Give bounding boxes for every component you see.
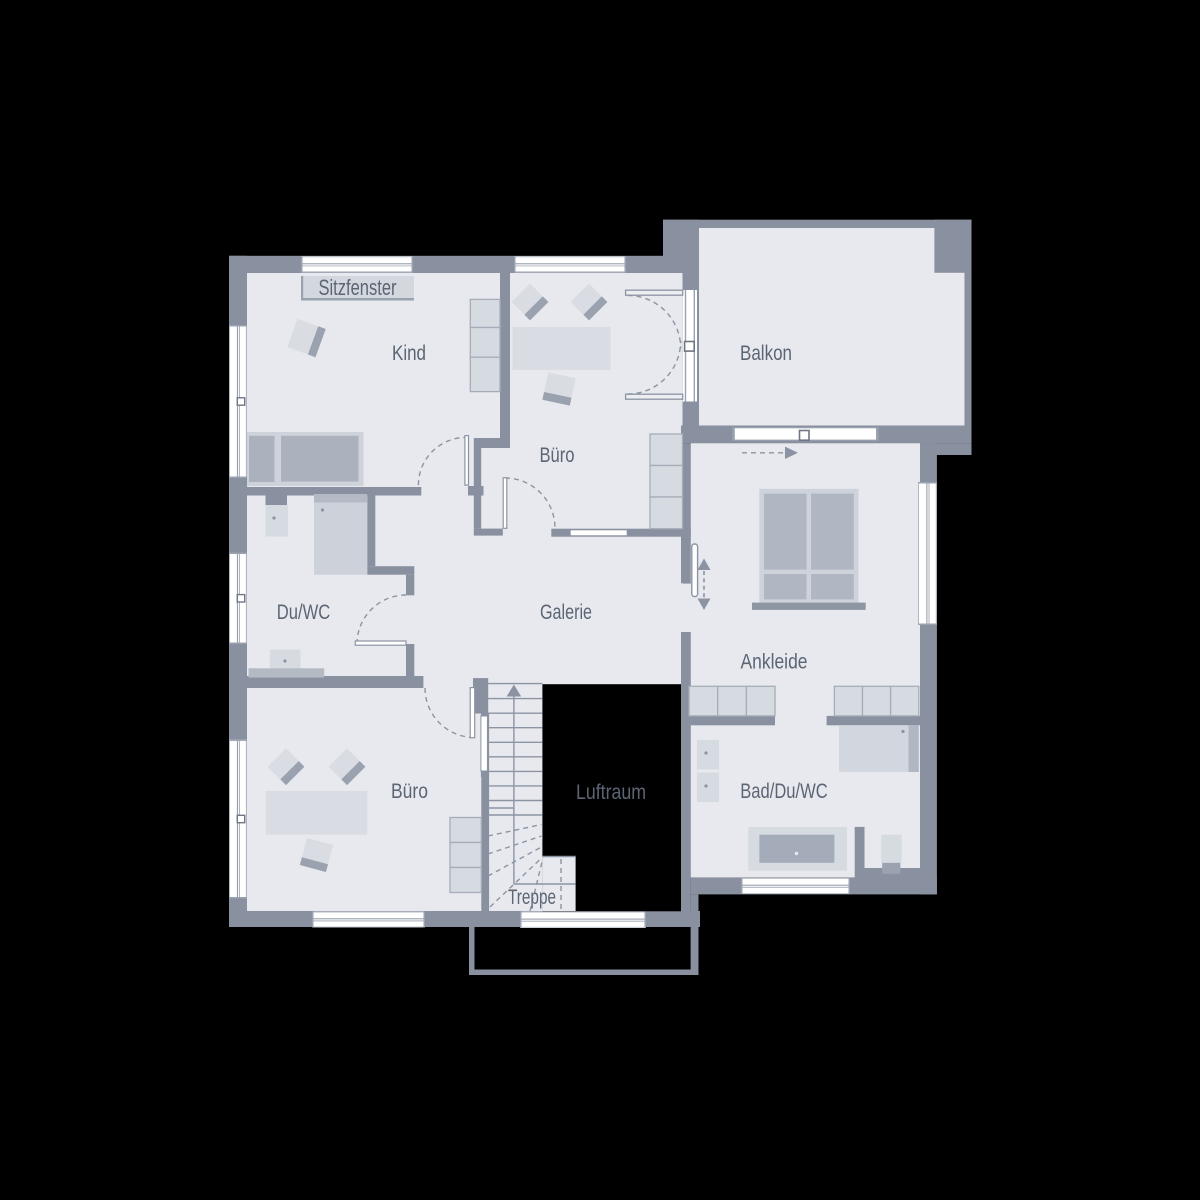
svg-text:Galerie: Galerie <box>540 601 592 624</box>
svg-text:Büro: Büro <box>391 780 428 803</box>
svg-text:Luftraum: Luftraum <box>576 781 646 804</box>
svg-text:Balkon: Balkon <box>740 342 792 365</box>
svg-text:Bad/Du/WC: Bad/Du/WC <box>740 780 828 803</box>
svg-text:Büro: Büro <box>540 444 575 467</box>
svg-text:Ankleide: Ankleide <box>741 651 808 674</box>
svg-text:Kind: Kind <box>392 342 426 365</box>
svg-text:Sitzfenster: Sitzfenster <box>319 275 397 300</box>
svg-text:Treppe: Treppe <box>508 886 556 909</box>
svg-text:Du/WC: Du/WC <box>277 601 331 624</box>
